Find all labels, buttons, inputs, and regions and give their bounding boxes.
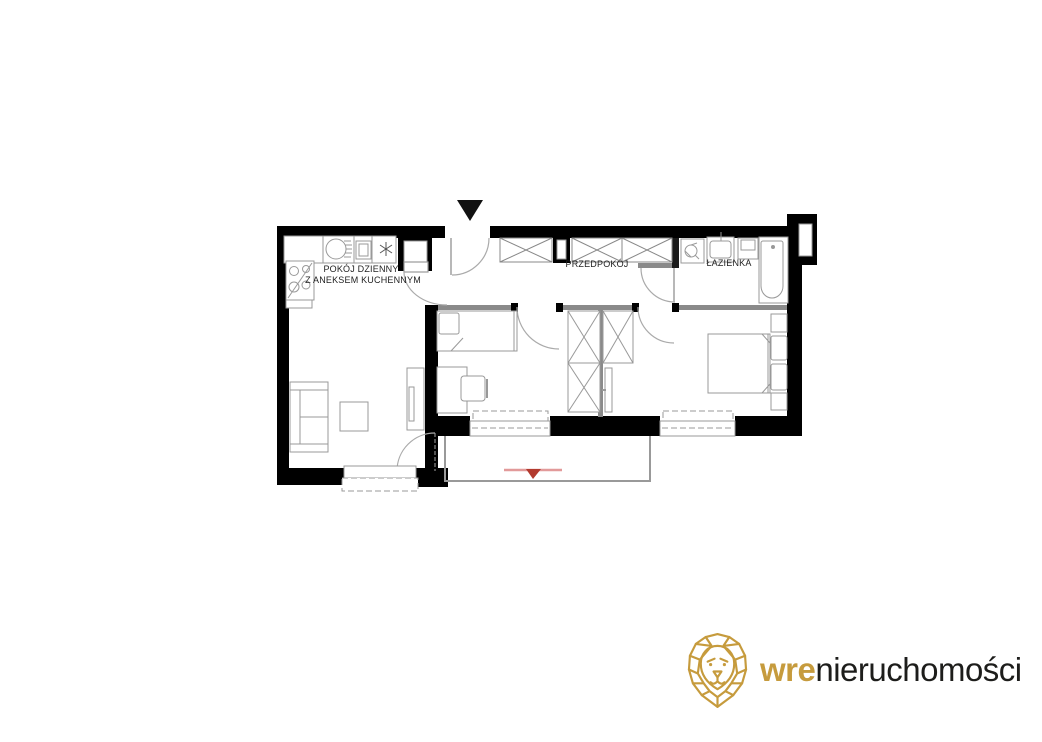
living-room-label-line1: POKÓJ DZIENNY [323,264,398,274]
washer-icon [738,238,758,259]
toilet-icon [681,239,704,263]
sofa [290,382,328,452]
tv-board [407,368,424,430]
bathtub-icon [759,237,788,303]
hallway-label: PRZEDPOKÓJ [565,259,628,269]
pillow [771,336,787,360]
coffee-table [340,402,368,431]
balcony-red-triangle-icon [526,469,541,479]
single-bed [437,311,517,351]
wardrobe-left [568,311,600,412]
nightstand [771,393,787,410]
brand-wordmark-rest: nieruchomości [815,651,1021,688]
pillow [771,364,787,390]
brand-wordmark-gold: wre [760,651,815,688]
mirror-panel [602,368,612,412]
double-bed [708,334,787,393]
brand-logo: wrenieruchomości [686,630,1022,710]
bedroom2-furniture [708,314,787,410]
lion-icon [686,632,749,709]
living-room-label-line2: Z ANEKSEM KUCHENNYM [305,275,421,285]
nightstand [771,314,787,332]
appliance-icon [356,241,371,259]
chair [461,376,487,401]
bathroom-label: ŁAZIENKA [706,258,751,268]
living-room-furniture [290,368,424,452]
wardrobe-right [603,311,633,363]
bedroom1-furniture [437,311,633,413]
kitchen-counter [284,236,396,263]
windows-radiators [342,411,735,491]
brand-wordmark: wrenieruchomości [760,653,1022,687]
balcony [445,436,650,481]
entrance-arrow-icon [457,200,483,221]
